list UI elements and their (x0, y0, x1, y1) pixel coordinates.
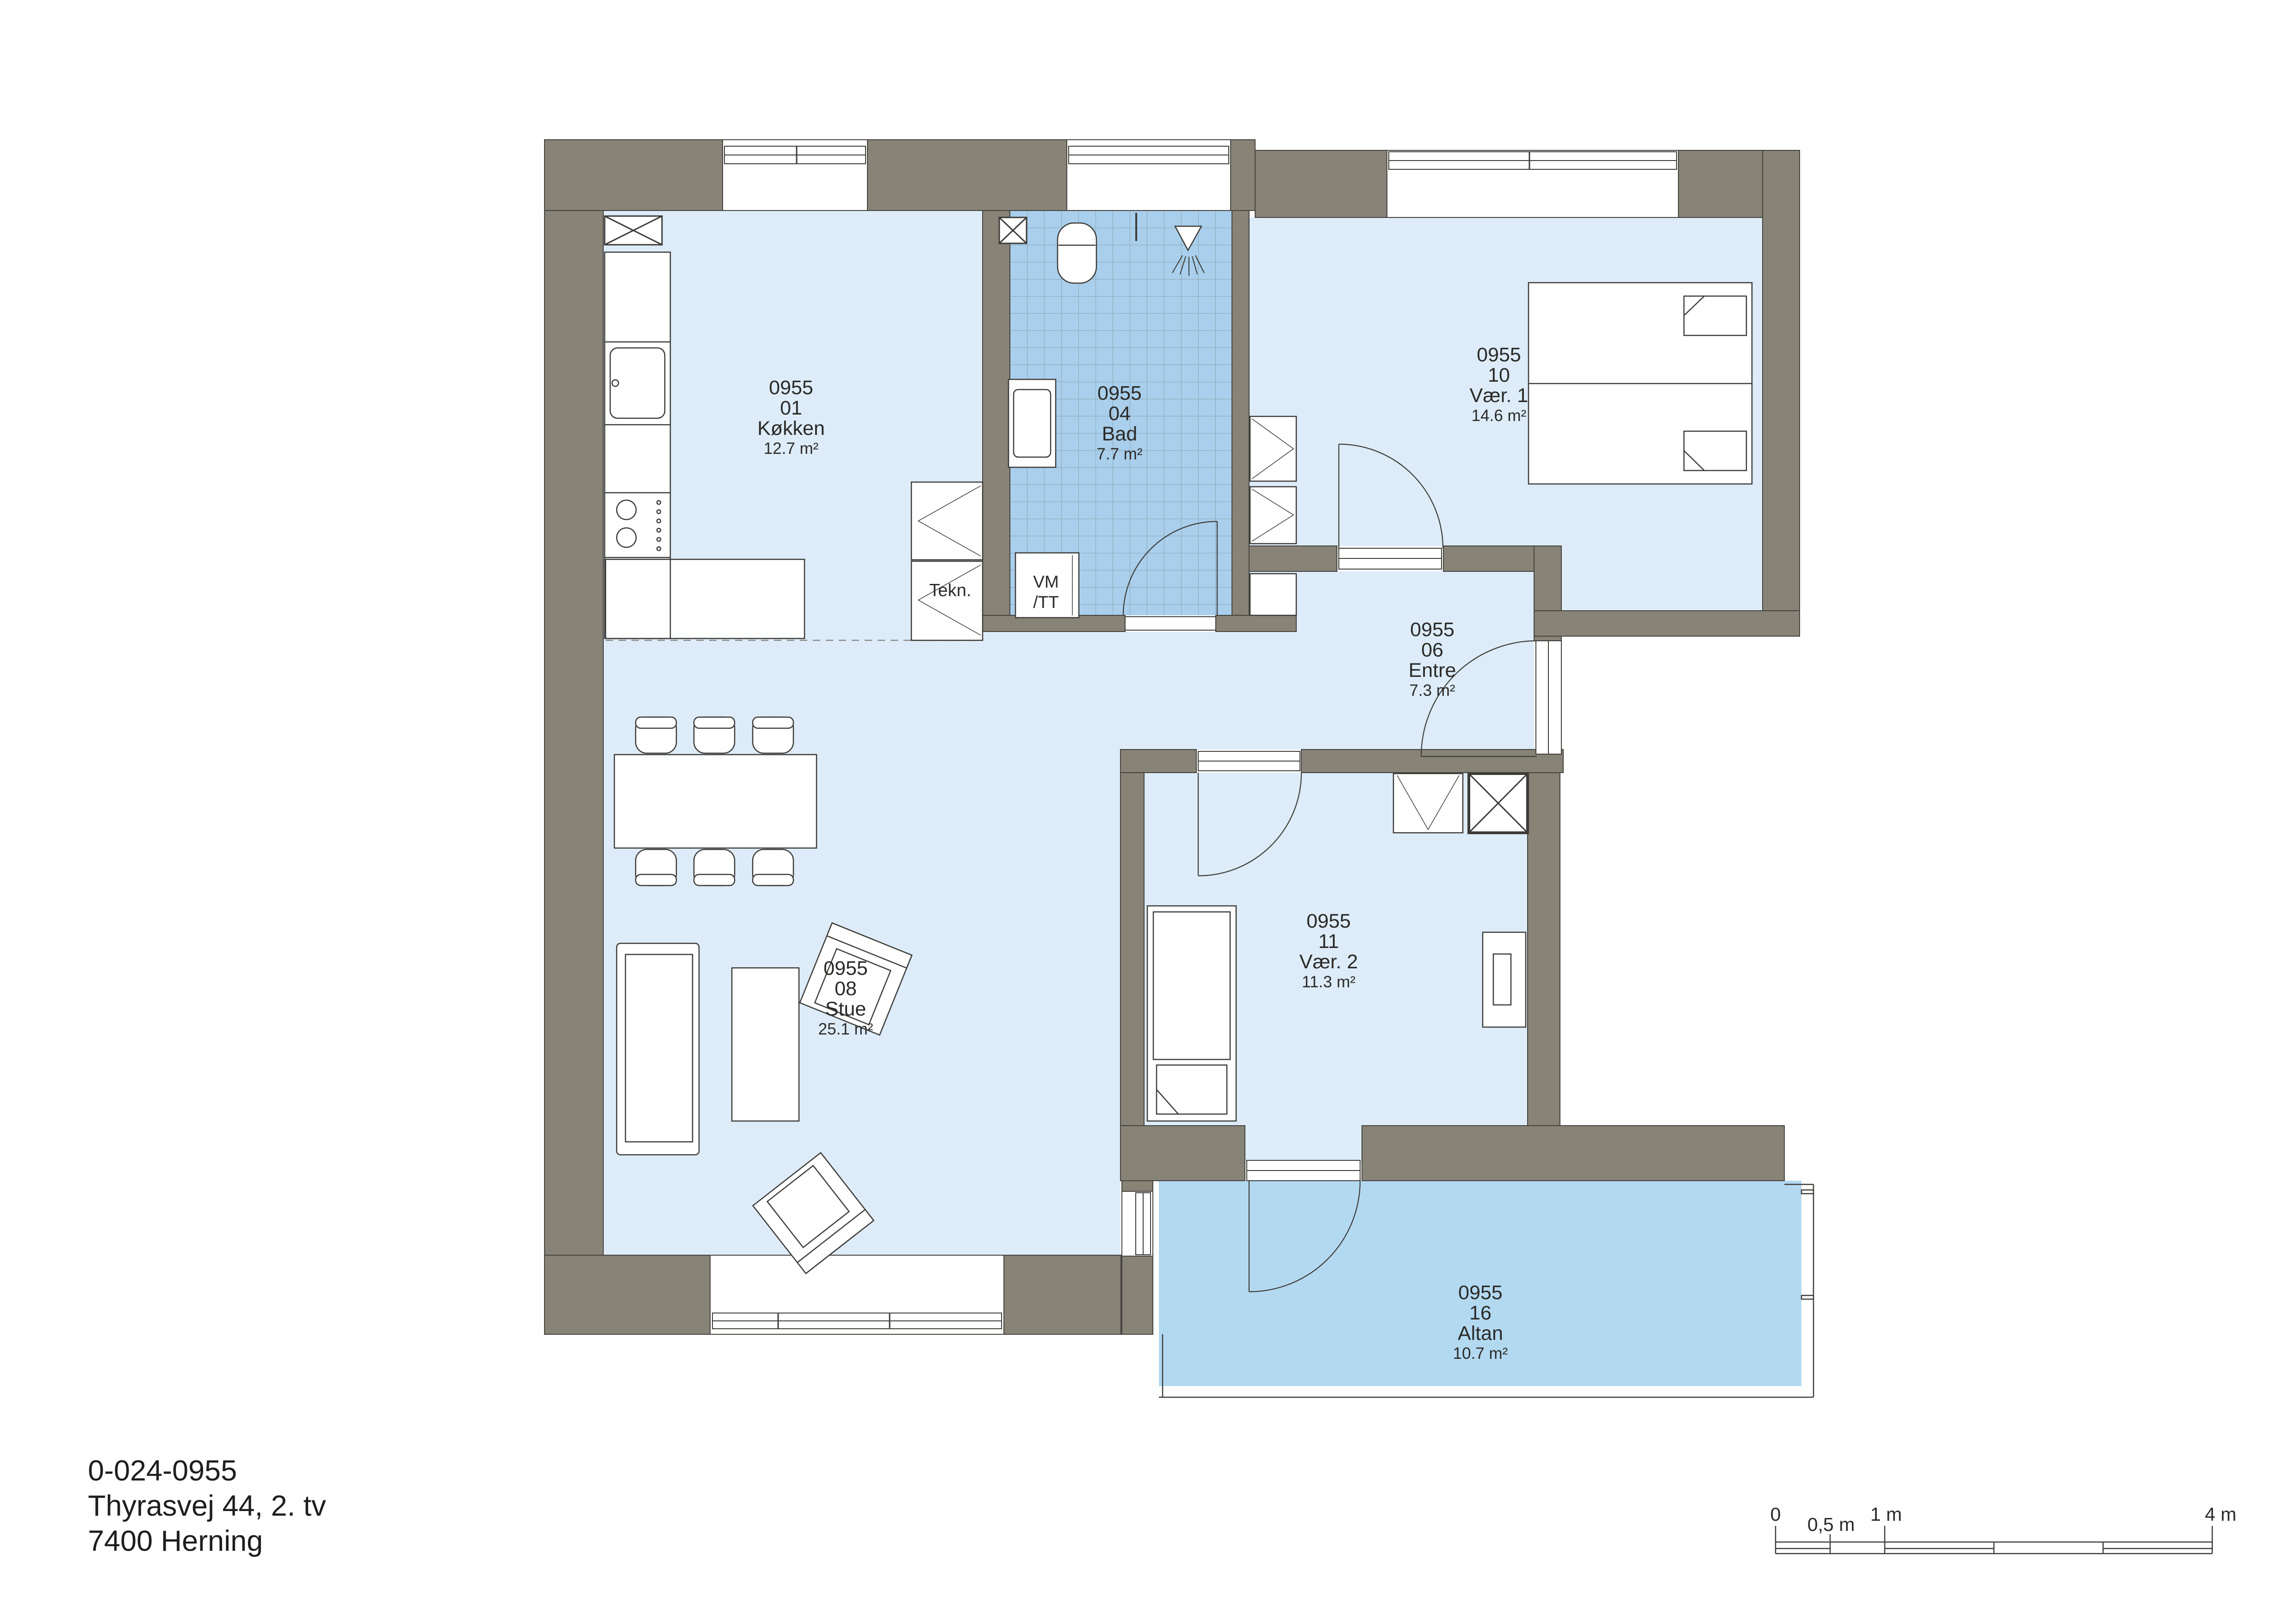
plan-footer: 0-024-0955 Thyrasvej 44, 2. tv 7400 Hern… (88, 1453, 326, 1559)
floor-plan-page: 0955 01 Køkken 12.7 m² 0955 04 Bad 7.7 m… (0, 0, 2296, 1623)
room-label-entre: 0955 06 Entre 7.3 m² (1409, 619, 1456, 701)
room-label-altan: 0955 16 Altan 10.7 m² (1453, 1282, 1508, 1364)
room-label-var1: 0955 10 Vær. 1 14.6 m² (1470, 345, 1529, 426)
tekn-label: Tekn. (929, 581, 972, 601)
plan-address: Thyrasvej 44, 2. tv (88, 1488, 326, 1524)
kitchen-counter (606, 559, 805, 638)
scale-tick-4m: 4 m (2205, 1504, 2236, 1525)
room-label-kokken: 0955 01 Køkken 12.7 m² (757, 378, 825, 459)
room-label-stue: 0955 08 Stue 25.1 m² (818, 958, 873, 1040)
toilet (1058, 223, 1096, 283)
room-label-bad: 0955 04 Bad 7.7 m² (1096, 383, 1142, 465)
pillow (1684, 431, 1746, 471)
floor-plan-drawing (0, 0, 2296, 1623)
dining-table (614, 755, 817, 848)
plan-city: 7400 Herning (88, 1524, 326, 1559)
wardrobe (1250, 487, 1296, 544)
entre-closet (1250, 574, 1296, 615)
var2-closet (1393, 774, 1463, 833)
tech-closet (911, 482, 983, 640)
room-label-var2: 0955 11 Vær. 2 11.3 m² (1300, 911, 1358, 992)
wardrobe (1250, 416, 1296, 481)
pillow (1157, 1065, 1227, 1114)
coffee-table (732, 968, 799, 1121)
vm-tt-label: VM /TT (1033, 572, 1059, 613)
scale-tick-1m: 1 m (1870, 1504, 1902, 1525)
scale-tick-0: 0 (1770, 1504, 1781, 1525)
scale-tick-05m: 0,5 m (1807, 1514, 1855, 1536)
plan-id: 0-024-0955 (88, 1453, 326, 1488)
pillow (1684, 296, 1746, 335)
